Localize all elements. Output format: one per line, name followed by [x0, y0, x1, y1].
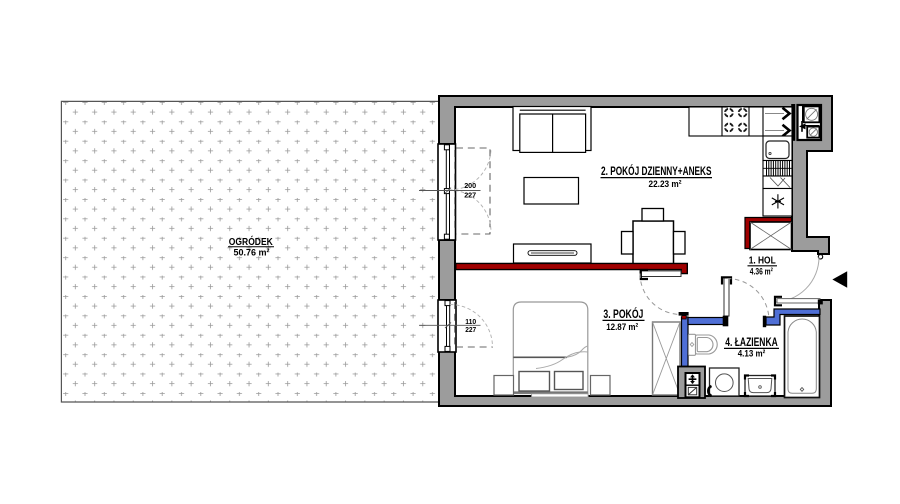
- svg-text:227: 227: [465, 325, 476, 334]
- svg-text:OGRÓDEK: OGRÓDEK: [229, 235, 273, 248]
- svg-text:22.23 m²: 22.23 m²: [649, 179, 682, 190]
- svg-text:2. POKÓJ DZIENNY+ANEKS: 2. POKÓJ DZIENNY+ANEKS: [601, 165, 712, 178]
- svg-text:1. HOL: 1. HOL: [749, 255, 776, 267]
- svg-text:200: 200: [464, 181, 476, 190]
- svg-text:50.76 m²: 50.76 m²: [234, 247, 270, 258]
- svg-text:12.87 m²: 12.87 m²: [606, 322, 638, 333]
- svg-text:4.13 m²: 4.13 m²: [738, 349, 766, 360]
- svg-text:227: 227: [464, 191, 476, 200]
- svg-text:4.36 m²: 4.36 m²: [750, 266, 773, 277]
- svg-text:3. POKÓJ: 3. POKÓJ: [603, 308, 643, 321]
- svg-text:4. ŁAZIENKA: 4. ŁAZIENKA: [725, 337, 778, 349]
